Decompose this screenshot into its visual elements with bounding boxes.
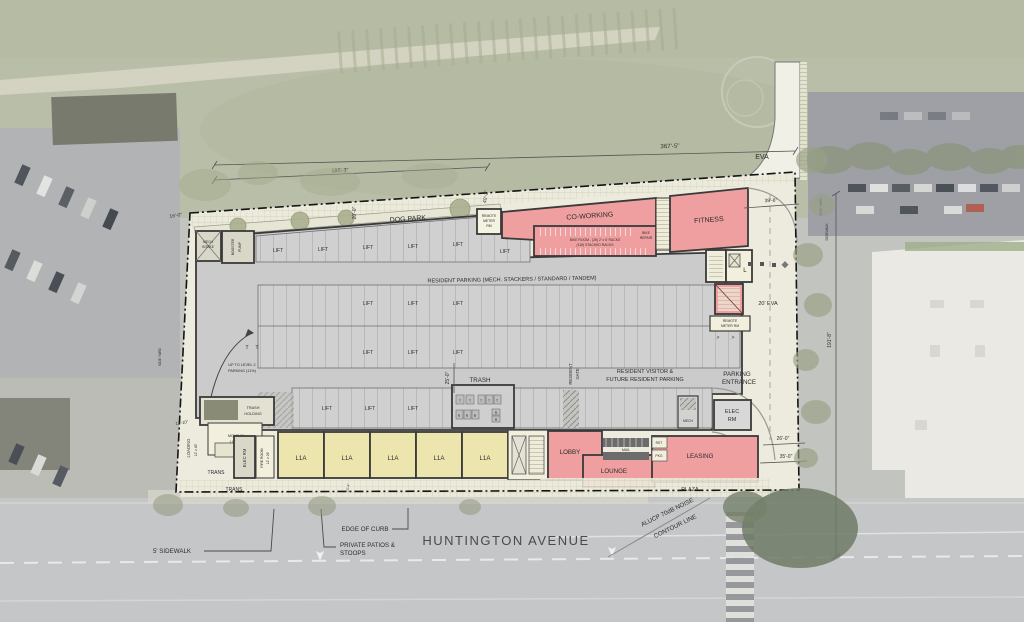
trash-room bbox=[452, 385, 514, 428]
up-to-level-label-2: PARKING (11%) bbox=[228, 369, 256, 373]
elec-room-left-label: ELEC RM bbox=[242, 448, 247, 467]
left-parking-lot bbox=[0, 128, 180, 380]
svg-text:LIFT: LIFT bbox=[453, 301, 463, 307]
resident-gate-label-1: RESIDENT bbox=[568, 363, 573, 385]
svg-text:L1A: L1A bbox=[341, 455, 353, 462]
dim-39-6: 39'-6" bbox=[764, 198, 777, 204]
bike-room-label-2: (115) STACKED RACKS bbox=[577, 243, 615, 247]
dim-25-0: 25'-0" bbox=[445, 371, 451, 384]
bike-room-label-1: BIKE ROOM - (26) 2' x 6' RACKS bbox=[570, 238, 621, 242]
bike-repair-label-2: REPAIR bbox=[640, 236, 653, 240]
svg-text:T: T bbox=[480, 399, 482, 403]
svg-text:LIFT: LIFT bbox=[408, 406, 418, 412]
sidewalk-right-label: SIDEWALK bbox=[825, 223, 829, 241]
stall-chevron: > bbox=[732, 335, 735, 341]
resident-gate-label-2: GATE bbox=[575, 368, 580, 379]
svg-text:LIFT: LIFT bbox=[363, 301, 373, 307]
lounge-label: LOUNGE bbox=[601, 468, 627, 475]
dim-20-0: 20'-0" bbox=[352, 206, 358, 219]
trans-label: TRANS bbox=[208, 470, 226, 476]
leasing-label: LEASING bbox=[687, 453, 714, 460]
edge-of-curb-label: EDGE OF CURB bbox=[341, 526, 388, 533]
mech-room-label: MECH bbox=[683, 419, 694, 423]
booster-pump-label-1: BOOSTER bbox=[231, 238, 235, 255]
resident-gate-hatch bbox=[563, 390, 579, 428]
trash-label: TRASH bbox=[470, 377, 491, 384]
svg-text:RM: RM bbox=[486, 224, 491, 228]
remote-meter-2-label: REMOTE bbox=[723, 319, 738, 323]
svg-text:L1A: L1A bbox=[387, 455, 399, 462]
svg-text:T: T bbox=[496, 399, 498, 403]
svg-text:LIFT: LIFT bbox=[453, 350, 463, 356]
elec-room-right bbox=[714, 400, 751, 430]
dim-26-0: 26'-0" bbox=[777, 436, 790, 442]
svg-text:RM: RM bbox=[728, 417, 737, 423]
eva-20-label: 20' EVA bbox=[758, 301, 778, 307]
huntington-avenue-label: HUNTINGTON AVENUE bbox=[422, 533, 589, 548]
rst-label: RST bbox=[656, 441, 663, 445]
pkg-label: PKG bbox=[655, 454, 663, 458]
tandem-t: T bbox=[245, 345, 248, 351]
trash-holding-label-2: HOLDING bbox=[244, 412, 261, 416]
left-building-roof bbox=[51, 93, 178, 145]
dim-367-5: 367'-5" bbox=[660, 143, 679, 151]
private-patios-label-1: PRIVATE PATIOS & bbox=[340, 542, 396, 549]
svg-text:LIFT: LIFT bbox=[273, 248, 283, 254]
svg-text:LIFT: LIFT bbox=[363, 245, 373, 251]
site-plan-canvas: EVA DOG PARK LIFT LIFT LIFT LIFT LIFT LI… bbox=[0, 0, 1024, 622]
svg-text:LIFT: LIFT bbox=[322, 406, 332, 412]
parking-entrance-label-2: ENTRANCE bbox=[722, 379, 756, 386]
loading-label-1: LOADING bbox=[186, 439, 191, 458]
svg-text:LIFT: LIFT bbox=[408, 301, 418, 307]
elevator-l-label: L bbox=[743, 267, 747, 274]
svg-text:LIFT: LIFT bbox=[453, 242, 463, 248]
remote-meter-top-label: REMOTE bbox=[482, 214, 497, 218]
elec-room-right-label: ELEC bbox=[725, 409, 739, 415]
booster-pump-label-2: PUMP bbox=[238, 241, 242, 252]
trash-holding-label-1: TRASH bbox=[247, 406, 260, 410]
fire-room-label-1: FIRE ROOM bbox=[260, 448, 264, 467]
svg-text:T: T bbox=[459, 399, 461, 403]
mech-intake-label-2: INTAKE bbox=[202, 245, 215, 249]
dim-191-8: 191'-8" bbox=[827, 332, 833, 348]
parking-entrance-label-1: PARKING bbox=[723, 371, 751, 378]
mech-intake-label-1: MECH bbox=[203, 240, 214, 244]
svg-text:LIFT: LIFT bbox=[408, 244, 418, 250]
eva-label: EVA bbox=[755, 154, 769, 161]
stall-row-middle bbox=[258, 285, 740, 368]
stall-chevron: > bbox=[717, 335, 720, 341]
lobby-label: LOBBY bbox=[560, 449, 581, 456]
private-patios-label-2: STOOPS bbox=[340, 550, 366, 557]
resident-visitor-label-1: RESIDENT VISITOR & bbox=[617, 369, 674, 375]
bike-repair-label-1: BIKE bbox=[642, 231, 650, 235]
right-lawn-strip bbox=[905, 242, 1024, 251]
sidewalk-5-label: 5' SIDEWALK bbox=[153, 548, 192, 555]
svg-text:LIFT: LIFT bbox=[365, 406, 375, 412]
up-to-level-label-1: UP TO LEVEL 2 bbox=[228, 363, 255, 367]
svg-text:L1A: L1A bbox=[433, 455, 445, 462]
svg-text:LIFT: LIFT bbox=[500, 249, 510, 255]
dim-35-0: 35'-0" bbox=[780, 454, 793, 460]
side-yard-left-label: SIDE YARD bbox=[158, 347, 162, 366]
fire-room bbox=[256, 436, 274, 478]
svg-text:L1A: L1A bbox=[479, 455, 491, 462]
resident-visitor-label-2: FUTURE RESIDENT PARKING bbox=[606, 377, 683, 383]
svg-text:LIFT: LIFT bbox=[363, 350, 373, 356]
svg-text:T: T bbox=[488, 399, 490, 403]
svg-text:LIFT: LIFT bbox=[318, 247, 328, 253]
unit-row: L1A L1A L1A L1A L1A bbox=[278, 432, 508, 478]
svg-text:METER: METER bbox=[483, 219, 495, 223]
mail-label: MAIL bbox=[622, 448, 630, 452]
svg-text:LIFT: LIFT bbox=[408, 350, 418, 356]
fire-room-label-2: 12' x 26' bbox=[266, 451, 270, 464]
svg-text:T: T bbox=[469, 399, 471, 403]
svg-text:METER RM: METER RM bbox=[721, 324, 739, 328]
svg-text:L1A: L1A bbox=[295, 455, 307, 462]
loading-label-2: 12' x 45' bbox=[194, 443, 198, 456]
amenity-stair bbox=[656, 198, 670, 250]
site-plan-svg: EVA DOG PARK LIFT LIFT LIFT LIFT LIFT LI… bbox=[0, 0, 1024, 622]
tandem-t: T bbox=[255, 345, 258, 351]
